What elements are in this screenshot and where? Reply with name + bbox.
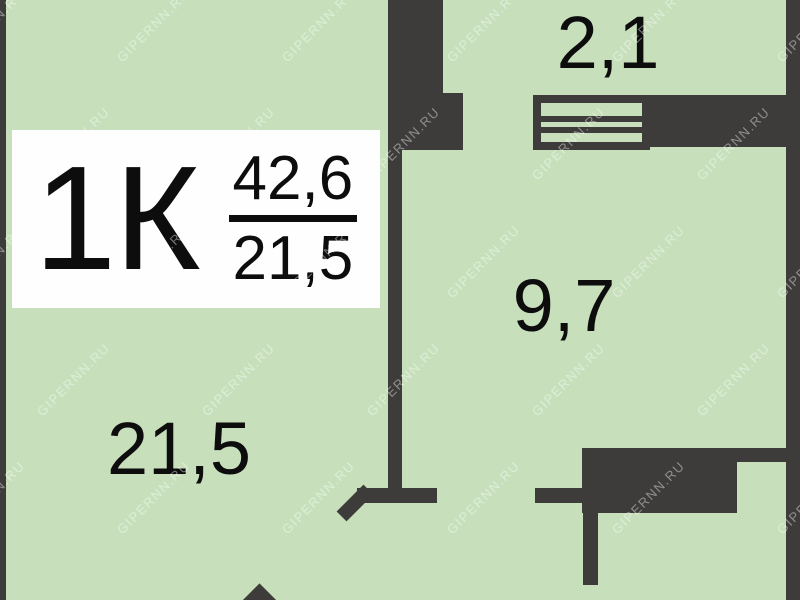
apartment-type-label: 1К xyxy=(34,151,199,287)
wall-band-to-right-wall xyxy=(737,448,786,462)
partition-wall-top xyxy=(388,0,443,95)
area-fraction: 42,6 21,5 xyxy=(229,148,358,290)
watermark-text: GIPERNN.RU xyxy=(444,458,523,537)
window-icon xyxy=(533,95,650,150)
watermark-text: GIPERNN.RU xyxy=(364,340,443,419)
window-pane-line xyxy=(541,127,642,133)
watermark-text: GIPERNN.RU xyxy=(694,340,773,419)
exterior-wall-window-right xyxy=(650,95,786,147)
watermark-text: GIPERNN.RU xyxy=(279,0,358,65)
watermark-text: GIPERNN.RU xyxy=(114,0,193,65)
watermark-text: GIPERNN.RU xyxy=(34,340,113,419)
room-label-living: 21,5 xyxy=(107,412,251,486)
partition-wall-corner xyxy=(388,93,463,150)
total-area-value: 42,6 xyxy=(229,148,358,222)
window-pane-line xyxy=(541,116,642,122)
hallway-wall-right-stub xyxy=(535,488,583,503)
hallway-wall-vertical xyxy=(583,513,598,585)
watermark-text: GIPERNN.RU xyxy=(529,340,608,419)
watermark-text: GIPERNN.RU xyxy=(609,222,688,301)
partition-wall-vertical xyxy=(388,150,402,503)
watermark-text: GIPERNN.RU xyxy=(444,222,523,301)
watermark-text: GIPERNN.RU xyxy=(444,0,523,65)
shaft-block xyxy=(582,448,737,513)
entrance-door-icon xyxy=(240,583,278,600)
outer-wall-right xyxy=(786,0,800,600)
area-badge: 1К 42,6 21,5 xyxy=(12,130,380,308)
floor-plan: 2,1 9,7 21,5 1К 42,6 21,5 GIPERNN.RUGIPE… xyxy=(0,0,800,600)
watermark-text: GIPERNN.RU xyxy=(279,458,358,537)
outer-wall-left xyxy=(0,0,6,600)
room-label-balcony: 2,1 xyxy=(557,6,660,80)
living-area-value: 21,5 xyxy=(233,222,354,290)
door-leaf-icon xyxy=(337,485,374,522)
room-label-bedroom: 9,7 xyxy=(513,269,616,343)
